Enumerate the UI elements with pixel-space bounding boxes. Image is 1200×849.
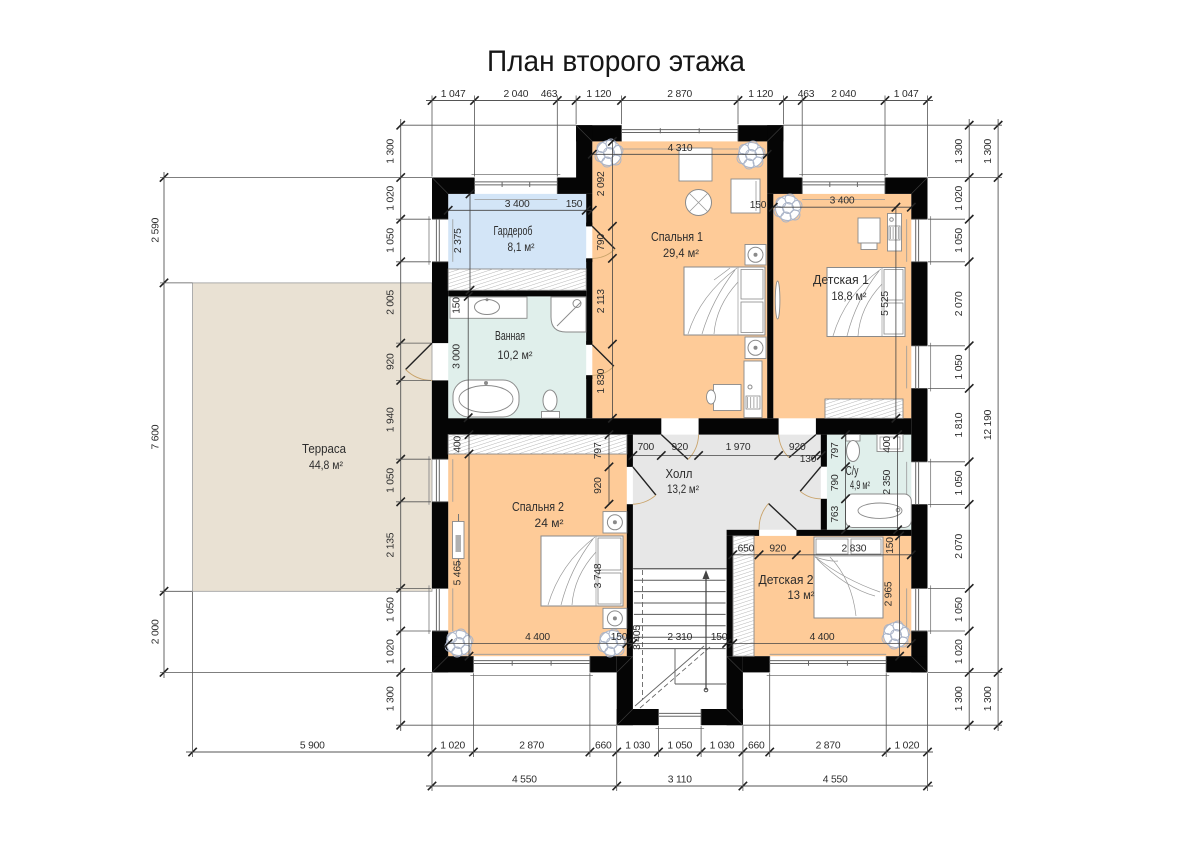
svg-text:1 300: 1 300 — [983, 686, 994, 711]
svg-text:План второго этажа: План второго этажа — [487, 45, 745, 78]
svg-text:4 400: 4 400 — [810, 632, 835, 643]
svg-text:4 310: 4 310 — [668, 143, 693, 154]
svg-text:463: 463 — [541, 89, 558, 100]
svg-text:24 м²: 24 м² — [535, 518, 564, 530]
svg-text:920: 920 — [593, 477, 604, 494]
svg-text:1 050: 1 050 — [954, 470, 965, 495]
svg-text:2 040: 2 040 — [504, 89, 529, 100]
svg-text:1 300: 1 300 — [954, 138, 965, 163]
svg-text:400: 400 — [882, 436, 893, 453]
svg-text:150: 150 — [452, 297, 463, 314]
svg-text:1 300: 1 300 — [983, 138, 994, 163]
svg-text:2 870: 2 870 — [816, 741, 841, 752]
svg-text:763: 763 — [830, 506, 841, 523]
svg-text:44,8 м²: 44,8 м² — [309, 460, 343, 472]
svg-text:Гардероб: Гардероб — [494, 224, 533, 238]
svg-text:700: 700 — [638, 442, 655, 453]
svg-text:5 525: 5 525 — [880, 291, 891, 316]
svg-text:2 870: 2 870 — [519, 741, 544, 752]
svg-text:2 350: 2 350 — [882, 469, 893, 494]
svg-text:2 000: 2 000 — [151, 619, 162, 644]
svg-text:13,2 м²: 13,2 м² — [667, 484, 699, 496]
svg-text:29,4 м²: 29,4 м² — [663, 248, 699, 260]
svg-text:1 830: 1 830 — [596, 368, 607, 393]
svg-text:1 300: 1 300 — [954, 686, 965, 711]
svg-text:1 810: 1 810 — [954, 412, 965, 437]
svg-text:1 050: 1 050 — [386, 468, 397, 493]
svg-text:3 405: 3 405 — [632, 625, 643, 650]
svg-text:400: 400 — [453, 436, 464, 453]
svg-text:150: 150 — [566, 199, 583, 210]
svg-text:920: 920 — [769, 543, 786, 554]
svg-text:920: 920 — [671, 442, 688, 453]
svg-text:Спальня 2: Спальня 2 — [512, 500, 564, 514]
svg-text:С/у: С/у — [846, 464, 860, 478]
svg-text:4 550: 4 550 — [512, 775, 537, 786]
svg-text:2 830: 2 830 — [842, 543, 867, 554]
svg-text:920: 920 — [789, 442, 806, 453]
svg-text:3 748: 3 748 — [593, 563, 604, 588]
svg-text:150: 150 — [611, 632, 628, 643]
svg-text:3 000: 3 000 — [452, 344, 463, 369]
svg-text:1 300: 1 300 — [386, 686, 397, 711]
svg-text:660: 660 — [595, 741, 612, 752]
svg-text:2 005: 2 005 — [386, 290, 397, 315]
svg-text:1 120: 1 120 — [748, 89, 773, 100]
svg-text:18,8 м²: 18,8 м² — [832, 291, 867, 303]
svg-text:10,2 м²: 10,2 м² — [498, 350, 533, 362]
svg-text:8,1 м²: 8,1 м² — [508, 242, 535, 254]
svg-text:1 050: 1 050 — [954, 597, 965, 622]
svg-text:463: 463 — [798, 89, 815, 100]
svg-text:2 070: 2 070 — [954, 534, 965, 559]
svg-text:12 190: 12 190 — [983, 409, 994, 440]
svg-text:3 110: 3 110 — [668, 775, 692, 786]
svg-text:2 375: 2 375 — [453, 228, 464, 253]
svg-text:150: 150 — [750, 200, 767, 211]
svg-text:2 092: 2 092 — [596, 171, 607, 196]
svg-text:2 040: 2 040 — [831, 89, 856, 100]
svg-text:2 310: 2 310 — [667, 632, 692, 643]
svg-text:130: 130 — [800, 454, 817, 465]
svg-text:1 050: 1 050 — [386, 228, 397, 253]
svg-text:1 020: 1 020 — [386, 639, 397, 664]
svg-text:Терраса: Терраса — [302, 442, 346, 456]
svg-text:Холл: Холл — [666, 467, 693, 481]
svg-text:1 030: 1 030 — [625, 741, 650, 752]
svg-text:150: 150 — [885, 537, 896, 554]
svg-text:4 550: 4 550 — [823, 775, 848, 786]
svg-text:13 м²: 13 м² — [788, 590, 815, 602]
svg-text:Детская 1: Детская 1 — [813, 273, 869, 287]
svg-text:Детская 2: Детская 2 — [759, 573, 814, 587]
svg-text:797: 797 — [593, 442, 604, 459]
svg-text:797: 797 — [830, 442, 841, 459]
svg-text:1 050: 1 050 — [954, 228, 965, 253]
svg-text:1 050: 1 050 — [667, 741, 692, 752]
svg-text:5 900: 5 900 — [300, 741, 325, 752]
svg-text:1 020: 1 020 — [954, 639, 965, 664]
svg-text:2 965: 2 965 — [884, 581, 895, 606]
svg-text:2 870: 2 870 — [667, 89, 692, 100]
svg-text:1 940: 1 940 — [386, 407, 397, 432]
svg-text:2 590: 2 590 — [151, 217, 162, 242]
svg-text:3 400: 3 400 — [830, 196, 855, 207]
svg-text:1 030: 1 030 — [710, 741, 735, 752]
svg-text:1 020: 1 020 — [386, 185, 397, 210]
svg-text:790: 790 — [596, 234, 607, 251]
svg-text:1 050: 1 050 — [954, 354, 965, 379]
svg-text:2 113: 2 113 — [596, 289, 607, 313]
svg-text:1 050: 1 050 — [386, 597, 397, 622]
svg-text:4 400: 4 400 — [525, 632, 550, 643]
svg-text:7 600: 7 600 — [151, 424, 162, 449]
svg-text:920: 920 — [386, 353, 397, 370]
svg-text:3 400: 3 400 — [505, 199, 530, 210]
svg-text:150: 150 — [711, 632, 728, 643]
svg-text:1 047: 1 047 — [894, 89, 919, 100]
svg-text:1 020: 1 020 — [895, 741, 920, 752]
svg-text:Спальня 1: Спальня 1 — [651, 230, 703, 244]
svg-text:Ванная: Ванная — [495, 329, 525, 343]
svg-text:1 300: 1 300 — [386, 138, 397, 163]
svg-text:1 120: 1 120 — [586, 89, 611, 100]
svg-text:2 070: 2 070 — [954, 291, 965, 316]
svg-text:1 970: 1 970 — [726, 442, 751, 453]
svg-text:650: 650 — [738, 543, 755, 554]
svg-text:4,9 м²: 4,9 м² — [850, 480, 870, 492]
svg-text:1 047: 1 047 — [441, 89, 466, 100]
svg-text:2 135: 2 135 — [386, 532, 397, 557]
svg-text:1 020: 1 020 — [954, 185, 965, 210]
svg-text:790: 790 — [830, 474, 841, 491]
svg-text:1 020: 1 020 — [440, 741, 465, 752]
svg-text:660: 660 — [748, 741, 765, 752]
svg-text:5 465: 5 465 — [453, 560, 464, 585]
